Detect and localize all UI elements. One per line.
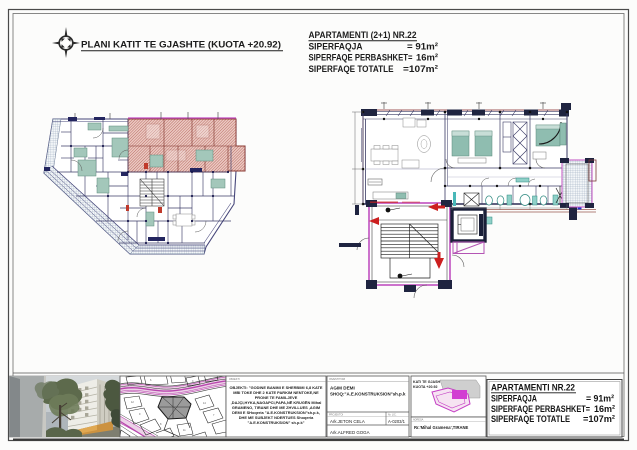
svg-text:ADRESA: ADRESA [413,419,424,422]
svg-text:Ark.ALFRED GOGA: Ark.ALFRED GOGA [330,430,370,435]
svg-text:SIPERFAQE TOTATLE: SIPERFAQE TOTATLE [309,64,394,74]
svg-text:SIPERFAQE PERBASHKET=: SIPERFAQE PERBASHKET= [309,53,413,63]
svg-text:OBJEKTI: OBJEKTI [229,377,240,381]
svg-text:APARTAMENTI (2+1) NR.22: APARTAMENTI (2+1) NR.22 [309,30,417,40]
svg-text:PROJEKTOI: PROJEKTOI [329,414,343,417]
svg-text:=107m²: =107m² [583,414,615,424]
svg-text:SIPERFAQE TOTATLE: SIPERFAQE TOTATLE [491,414,570,424]
svg-text:SIPERFAQJA: SIPERFAQJA [309,41,363,51]
svg-text:= 91m²: = 91m² [407,41,438,51]
svg-text:16m²: 16m² [416,53,438,63]
svg-text:Ark.JETON CELA: Ark.JETON CELA [330,419,365,424]
svg-text:=107m²: =107m² [403,64,438,74]
svg-text:AGIM DEMI: AGIM DEMI [330,386,355,391]
svg-text:SHOQ:"A.E.KONSTRUKSION"sh.p.k: SHOQ:"A.E.KONSTRUKSION"sh.p.k [330,392,406,397]
svg-text:KUOTA +20.92: KUOTA +20.92 [413,385,437,389]
svg-text:"A.E.KONSTRUKSION" sh.p.k": "A.E.KONSTRUKSION" sh.p.k" [248,420,305,425]
svg-text:Rr.'Mihal Gramena',TIRANE: Rr.'Mihal Gramena',TIRANE [414,425,469,430]
svg-text:= 91m²: = 91m² [586,394,614,404]
svg-text:INVESTITORI: INVESTITORI [329,377,346,381]
svg-text:16m²: 16m² [594,404,615,414]
svg-text:SIPERFAQJA: SIPERFAQJA [491,394,537,404]
svg-text:A-0203/1: A-0203/1 [388,419,406,424]
svg-text:PLANI KATIT TE GJASHTE (KUOTA: PLANI KATIT TE GJASHTE (KUOTA +20.92) [81,40,281,50]
svg-text:Nr. LIC.: Nr. LIC. [388,414,397,417]
svg-text:SIPERFAQE PERBASHKET=: SIPERFAQE PERBASHKET= [491,404,590,414]
svg-text:APARTAMENTI NR.22: APARTAMENTI NR.22 [491,383,575,393]
